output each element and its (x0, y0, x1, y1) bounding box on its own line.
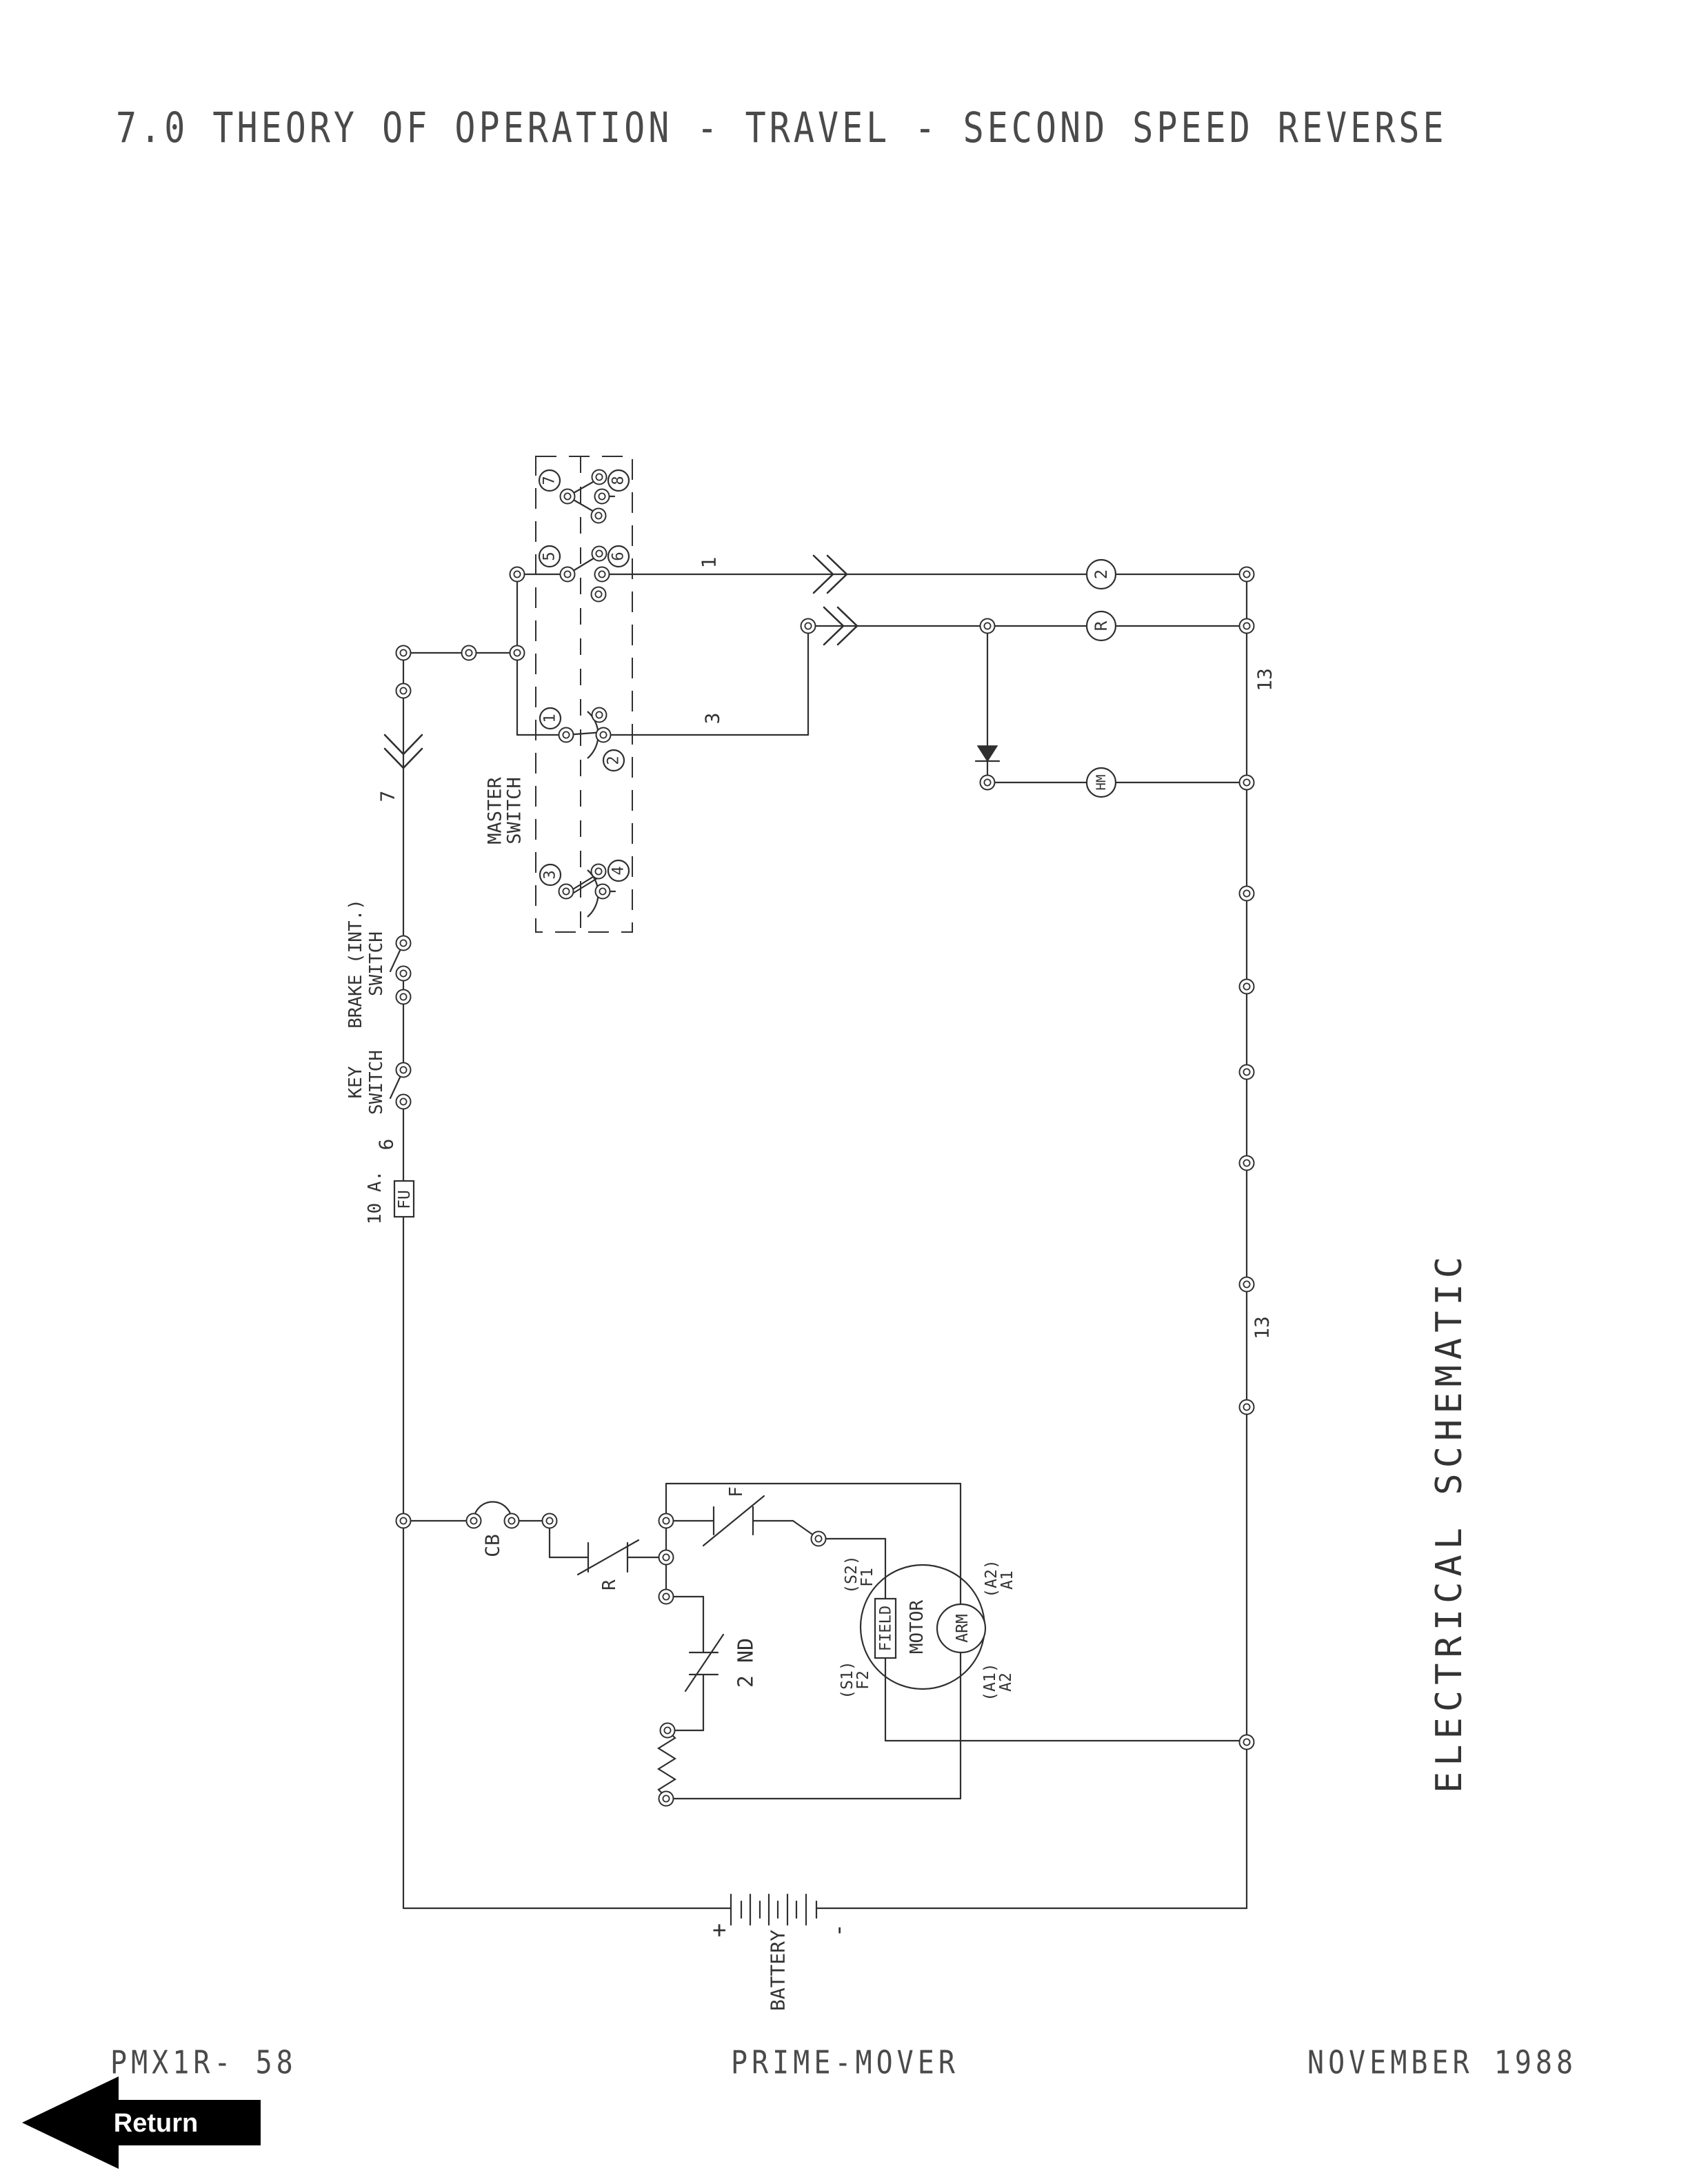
motor-terminal-a1: A1 (998, 1570, 1016, 1590)
msw-contact-5: 5 (541, 552, 559, 560)
fuse-rating-label: 10 A. (365, 1171, 385, 1224)
circuit-wires (403, 574, 1247, 1908)
schematic-title-vertical: ELECTRICAL SCHEMATIC (1429, 1251, 1470, 1793)
master-switch-label-line2: SWITCH (504, 777, 525, 845)
reverse-coil-label: R (1092, 620, 1111, 631)
manual-page: 7.0 THEORY OF OPERATION - TRAVEL - SECON… (0, 0, 1688, 2184)
circuit-breaker: CB (474, 1502, 512, 1557)
second-speed-label: 2 ND (734, 1638, 758, 1688)
fuse-label: FU (396, 1190, 414, 1209)
wire-6-label: 6 (375, 1139, 398, 1151)
hourmeter-coil: HM (1087, 768, 1116, 797)
return-button[interactable]: Return (12, 2068, 274, 2184)
fuse: FU 10 A. (365, 1171, 414, 1224)
msw-contact-8: 8 (610, 476, 627, 485)
msw-contact-1: 1 (542, 714, 559, 722)
master-switch: 7 8 5 6 1 2 3 4 (485, 456, 633, 932)
msw-contact-7: 7 (541, 476, 559, 485)
key-switch-label-line1: KEY (345, 1066, 366, 1098)
traction-motor: FIELD MOTOR ARM (S2) F1 (S1) F2 (A2) A1 … (838, 1555, 1016, 1701)
speed2-contactor-coil: 2 (1087, 560, 1116, 589)
publication-date: NOVEMBER 1988 (1307, 2045, 1577, 2081)
wire-13-label-lower: 13 (1251, 1316, 1274, 1339)
master-switch-label-line1: MASTER (485, 776, 506, 844)
wire-number-labels: 7 6 1 3 13 13 (375, 557, 1276, 1339)
wire-1-label: 1 (698, 557, 721, 569)
wire-terminals (396, 470, 1254, 1806)
wire-7-label: 7 (376, 791, 399, 802)
brake-switch-label-line1: BRAKE (INT.) (345, 899, 366, 1029)
key-switch: KEY SWITCH (345, 1050, 403, 1115)
brake-interlock-switch: BRAKE (INT.) SWITCH (345, 899, 403, 1029)
reverse-contactor-coil: R (1087, 611, 1116, 640)
diode (976, 746, 999, 761)
motor-terminal-f2: F2 (854, 1670, 872, 1690)
msw-contact-2: 2 (605, 756, 623, 765)
msw-contact-4: 4 (610, 866, 627, 875)
product-name: PRIME-MOVER (731, 2045, 959, 2081)
resistor (659, 1730, 675, 1797)
forward-contactor-contact: F (703, 1486, 764, 1546)
battery-label: BATTERY (767, 1930, 790, 2011)
msw-contact-6: 6 (610, 552, 627, 560)
hourmeter-coil-label: HM (1094, 775, 1109, 791)
msw-contact-3: 3 (542, 870, 559, 879)
key-switch-label-line2: SWITCH (366, 1050, 387, 1115)
reverse-contactor-contact: R (578, 1540, 639, 1590)
brake-switch-label-line2: SWITCH (366, 931, 387, 996)
motor-terminal-f1: F1 (858, 1568, 876, 1587)
motor-armature-label: ARM (954, 1614, 972, 1643)
motor-terminal-a2: A2 (997, 1672, 1015, 1692)
motor-field-label: FIELD (878, 1606, 895, 1651)
motor-label: MOTOR (907, 1600, 927, 1655)
reverse-contact-label: R (599, 1579, 620, 1590)
wire-3-label: 3 (701, 713, 724, 725)
battery-plus-label: + (705, 1923, 733, 1937)
second-speed-contact: 2 ND (685, 1635, 758, 1691)
flow-arrow-chevrons (385, 556, 857, 768)
speed2-coil-label: 2 (1092, 569, 1111, 579)
forward-contact-label: F (726, 1486, 747, 1497)
electrical-schematic-diagram: BRAKE (INT.) SWITCH KEY SWITCH FU 10 A. … (0, 0, 1688, 2184)
battery: + - BATTERY (705, 1894, 852, 2011)
battery-minus-label: - (825, 1923, 852, 1937)
wire-13-label-upper: 13 (1254, 668, 1276, 691)
circuit-breaker-label: CB (481, 1534, 504, 1557)
return-button-label: Return (114, 2109, 198, 2138)
